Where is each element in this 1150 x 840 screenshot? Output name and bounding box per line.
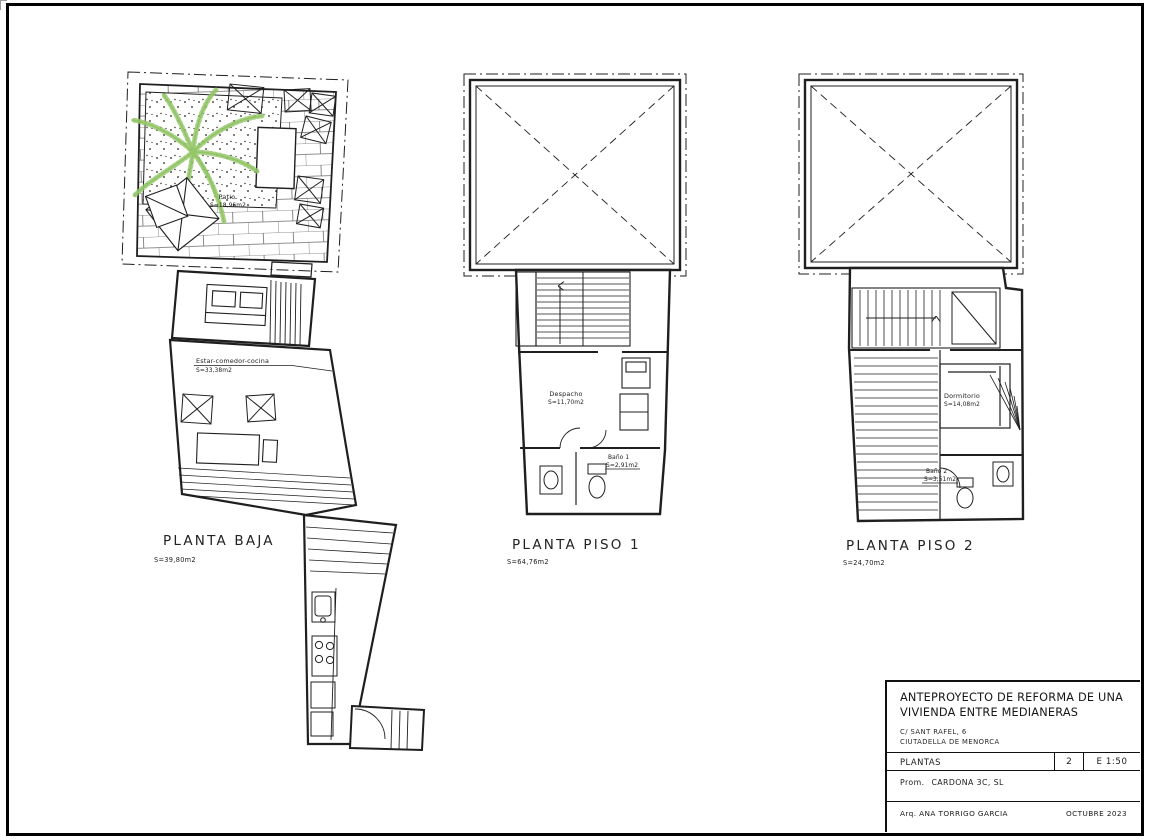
- patio-area: S=18,96m2: [210, 203, 246, 209]
- entry-room-walls: [172, 271, 315, 346]
- drawing-date: OCTUBRE 2023: [1066, 809, 1127, 831]
- bano1-area: S=2,91m2: [606, 463, 638, 469]
- plan-piso-1: Despacho S=11,70m2 Baño 1 S=2,91m2 PLANT…: [464, 74, 686, 566]
- bano1-label: Baño 1: [608, 455, 629, 461]
- title-block-architect-row: Arq. ANA TORRIGO GARCIA OCTUBRE 2023: [887, 801, 1140, 831]
- plan-piso-2: Dormitorio S=14,08m2 Baño 2 S=3,51m2 PLA…: [799, 74, 1023, 567]
- project-city: CIUTADELLA DE MENORCA: [900, 737, 1130, 748]
- planter-box: [256, 127, 296, 188]
- plan-title-piso-1: PLANTA PISO 1: [512, 537, 641, 553]
- plan-title-planta-baja: PLANTA BAJA: [163, 533, 275, 549]
- title-block-project-section: ANTEPROYECTO DE REFORMA DE UNA VIVIENDA …: [887, 682, 1140, 752]
- project-address: C/ SANT RAFEL, 6: [900, 727, 1130, 738]
- rear-porch-walls: [350, 706, 424, 750]
- plan-area-piso-2: S=24,70m2: [843, 559, 885, 567]
- title-block-sheet-row: PLANTAS 2 E 1:50: [887, 752, 1140, 770]
- patio-label: Patio: [219, 193, 236, 201]
- dormitorio-label: Dormitorio: [944, 392, 980, 400]
- estar-label: Estar-comedor-cocina: [196, 357, 269, 365]
- architect-label: Arq.: [900, 809, 916, 818]
- plan-area-piso-1: S=64,76m2: [507, 558, 549, 566]
- project-title: ANTEPROYECTO DE REFORMA DE UNA VIVIENDA …: [900, 691, 1130, 721]
- plan-planta-baja: Patio S=18,96m2: [122, 72, 424, 750]
- title-block-promoter-row: Prom.CARDONA 3C, SL: [887, 770, 1140, 801]
- plan-title-piso-2: PLANTA PISO 2: [846, 538, 975, 554]
- plan-area-planta-baja: S=39,80m2: [154, 556, 196, 564]
- sheet-number: 2: [1054, 753, 1083, 770]
- bano2-area: S=3,51m2: [924, 477, 956, 483]
- estar-area: S=33,38m2: [196, 368, 232, 374]
- title-block: ANTEPROYECTO DE REFORMA DE UNA VIVIENDA …: [885, 680, 1140, 832]
- dormitorio-area: S=14,08m2: [944, 402, 980, 408]
- architect-name: ANA TORRIGO GARCIA: [919, 809, 1008, 818]
- despacho-area: S=11,70m2: [548, 400, 584, 406]
- despacho-label: Despacho: [549, 390, 582, 398]
- promoter-label: Prom.: [900, 778, 924, 787]
- bano2-label: Baño 2: [926, 469, 947, 475]
- promoter-name: CARDONA 3C, SL: [931, 778, 1003, 787]
- drawing-scale: E 1:50: [1083, 753, 1140, 770]
- sheet-name: PLANTAS: [887, 753, 1054, 770]
- living-room-walls: [170, 340, 356, 515]
